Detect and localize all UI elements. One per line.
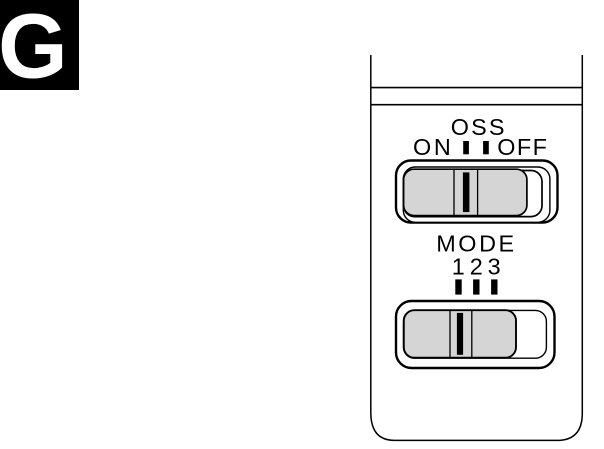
svg-text:1 2 3: 1 2 3 [452, 254, 500, 280]
svg-text:MODE: MODE [436, 230, 517, 256]
svg-text:ON: ON [413, 134, 454, 160]
svg-text:OFF: OFF [497, 134, 548, 160]
svg-text:G: G [0, 0, 68, 97]
